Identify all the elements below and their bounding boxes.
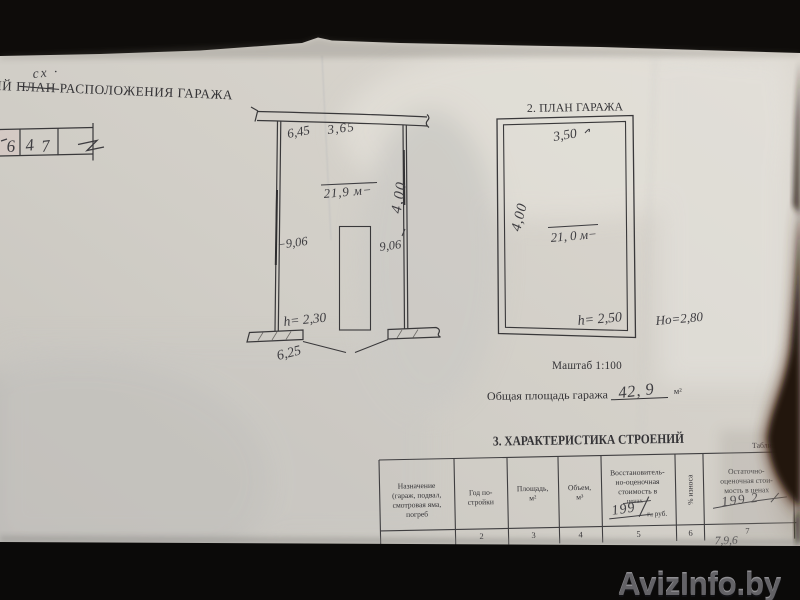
svg-text:м³: м³: [576, 492, 584, 501]
svg-text:стоимость в: стоимость в: [618, 486, 657, 496]
svg-text:Маштаб 1:100: Маштаб 1:100: [552, 360, 622, 372]
svg-text:(гараж, подвал,: (гараж, подвал,: [392, 490, 442, 500]
svg-text:3: 3: [531, 530, 535, 540]
svg-text:Назначение: Назначение: [398, 481, 436, 491]
svg-text:2. ПЛАН ГАРАЖА: 2. ПЛАН ГАРАЖА: [527, 100, 624, 115]
svg-text:% износа: % износа: [685, 474, 695, 505]
svg-text:но-оценочная: но-оценочная: [615, 477, 660, 487]
svg-text:погреб: погреб: [406, 510, 428, 519]
svg-text:cx ·: cx ·: [32, 64, 60, 81]
svg-text:Объем,: Объем,: [568, 483, 591, 492]
svg-text:смотровая яма,: смотровая яма,: [393, 500, 442, 510]
svg-text:3. ХАРАКТЕРИСТИКА СТРОЕНИЙ: 3. ХАРАКТЕРИСТИКА СТРОЕНИЙ: [493, 431, 685, 449]
svg-text:AvizInfo.by: AvizInfo.by: [618, 567, 782, 600]
svg-text:Год по-: Год по-: [469, 488, 493, 497]
svg-text:6: 6: [688, 528, 692, 538]
svg-text:5: 5: [636, 529, 640, 539]
svg-text:м²: м²: [674, 386, 683, 396]
svg-text:стройки: стройки: [468, 497, 494, 507]
svg-text:Общая площадь гаража: Общая площадь гаража: [487, 389, 608, 403]
svg-text:Площадь,: Площадь,: [517, 484, 549, 494]
svg-text:Восстановитель-: Восстановитель-: [610, 467, 665, 477]
svg-text:м²: м²: [529, 493, 537, 502]
